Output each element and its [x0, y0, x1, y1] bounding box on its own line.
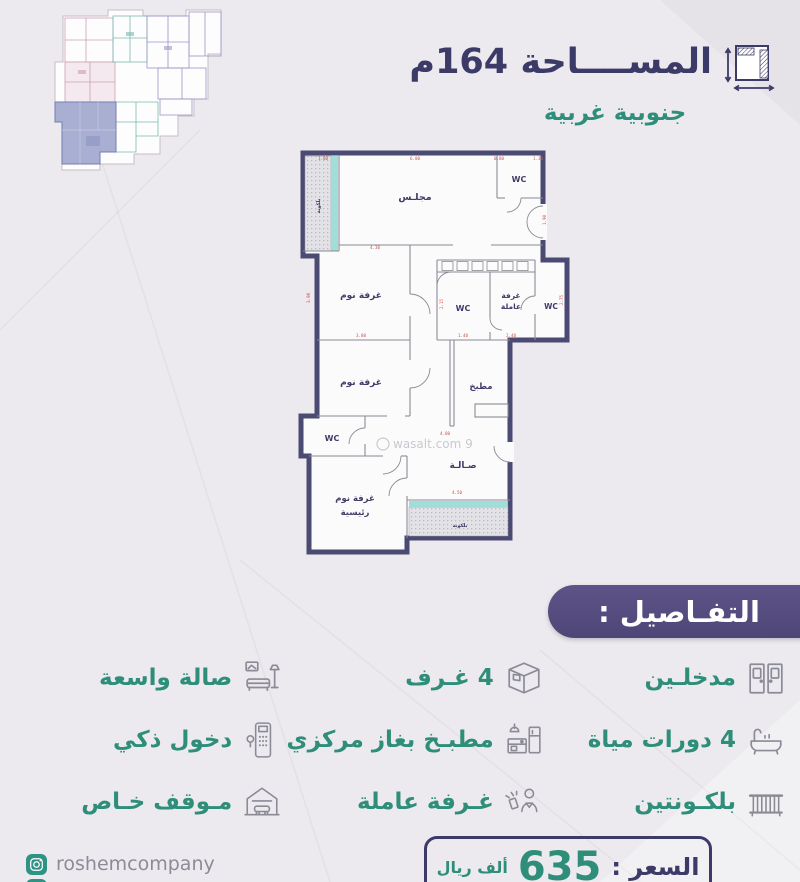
dim: 2.40 — [506, 333, 517, 338]
feature-parking: مـوقف خـاص — [40, 776, 282, 828]
maid-icon — [504, 782, 544, 822]
building-overview-plan — [38, 4, 243, 174]
room-wc-top: WC — [512, 175, 527, 184]
room-bedroom-1: غرفة نوم — [340, 291, 382, 301]
room-hall: صـالـة — [449, 461, 476, 471]
dim: 1.30 — [533, 156, 544, 161]
orientation-label: جنوبية غربية — [515, 100, 715, 126]
double-door-icon — [746, 658, 786, 698]
dim: 3.80 — [356, 333, 367, 338]
room-bedroom-2: غرفة نوم — [340, 378, 382, 388]
feature-rooms: 4 غـرف — [282, 652, 544, 704]
sofa-icon — [242, 658, 282, 698]
outer-walls — [301, 153, 567, 552]
feature-kitchen: مطبـخ بغاز مركزي — [282, 714, 544, 766]
kitchen-icon — [504, 720, 544, 760]
price-box: السعر : 635 ألف ريال — [424, 836, 712, 882]
building-overview-svg — [38, 4, 243, 174]
price-unit: ألف ريال — [437, 858, 508, 877]
feature-balconies: بلكـونتين — [544, 776, 786, 828]
price-value: 635 — [518, 847, 602, 882]
room-wc-center: WC — [456, 304, 471, 313]
room-master-1: غرفة نوم — [335, 494, 375, 504]
details-banner: التفـاصيل : — [548, 585, 800, 638]
dim: 1.90 — [542, 214, 547, 225]
dim: 4.50 — [452, 490, 463, 495]
dim: 3.90 — [306, 292, 311, 303]
features-grid: مدخلـين 4 غـرف صالة واسعة — [40, 652, 786, 828]
room-balcony-bottom: بلكونة — [453, 523, 468, 529]
footer-company-row: roshemcompany — [26, 853, 246, 875]
feature-label: 4 دورات مياة — [588, 727, 736, 753]
feature-label: غـرفة عاملة — [357, 789, 494, 815]
feature-label: بلكـونتين — [634, 789, 736, 815]
dim: 2.75 — [559, 294, 564, 305]
feature-smart-entry: دخول ذكي — [40, 714, 282, 766]
price-label: السعر : — [611, 853, 699, 881]
feature-hall: صالة واسعة — [40, 652, 282, 704]
balcony-icon — [746, 782, 786, 822]
rooms-cube-icon — [504, 658, 544, 698]
room-maid-1: غرفة — [501, 291, 520, 300]
dim: 4.00 — [440, 431, 451, 436]
feature-entrances: مدخلـين — [544, 652, 786, 704]
feature-label: صالة واسعة — [99, 665, 232, 691]
room-majlis: مجلـس — [398, 192, 431, 203]
dim: 4.30 — [370, 245, 381, 250]
feature-maid-room: غـرفة عاملة — [282, 776, 544, 828]
smart-lock-icon — [242, 720, 282, 760]
dim: 6.00 — [410, 156, 421, 161]
details-title: التفـاصيل : — [598, 595, 760, 629]
company-handle: roshemcompany — [56, 853, 215, 875]
balcony-bottom — [409, 507, 508, 536]
room-master-2: رئيسية — [341, 508, 370, 518]
room-balcony-top: بلكونة — [316, 198, 322, 213]
dim: 1.00 — [318, 156, 329, 161]
dim: 0.80 — [494, 156, 505, 161]
instagram-icon — [26, 854, 47, 875]
feature-label: 4 غـرف — [405, 665, 494, 691]
room-maid-2: عاملة — [501, 302, 521, 311]
feature-label: مـوقف خـاص — [81, 789, 232, 815]
garage-icon — [242, 782, 282, 822]
room-wc-left: WC — [325, 434, 340, 443]
feature-label: مدخلـين — [645, 665, 736, 691]
feature-label: مطبـخ بغاز مركزي — [287, 727, 494, 753]
room-wc-right: WC — [544, 302, 558, 311]
room-kitchen: مطبخ — [469, 382, 492, 392]
floor-plan: مجلـس WC بلكونة غرفة نوم WC غرفة عاملة W… — [295, 148, 570, 558]
feature-label: دخول ذكي — [113, 727, 232, 753]
area-title: المســــاحة 164م — [409, 42, 712, 82]
dim: 2.15 — [439, 298, 444, 309]
footer: roshemcompany — [26, 853, 246, 882]
flyer-page: المســــاحة 164م جنوبية غربية — [0, 0, 800, 882]
watermark-text: wasalt.com 9 — [393, 437, 473, 451]
floor-plan-svg: مجلـس WC بلكونة غرفة نوم WC غرفة عاملة W… — [295, 148, 570, 558]
dim: 1.40 — [458, 333, 469, 338]
feature-bathrooms: 4 دورات مياة — [544, 714, 786, 766]
bathtub-icon — [746, 720, 786, 760]
dimensions-icon — [722, 40, 776, 94]
